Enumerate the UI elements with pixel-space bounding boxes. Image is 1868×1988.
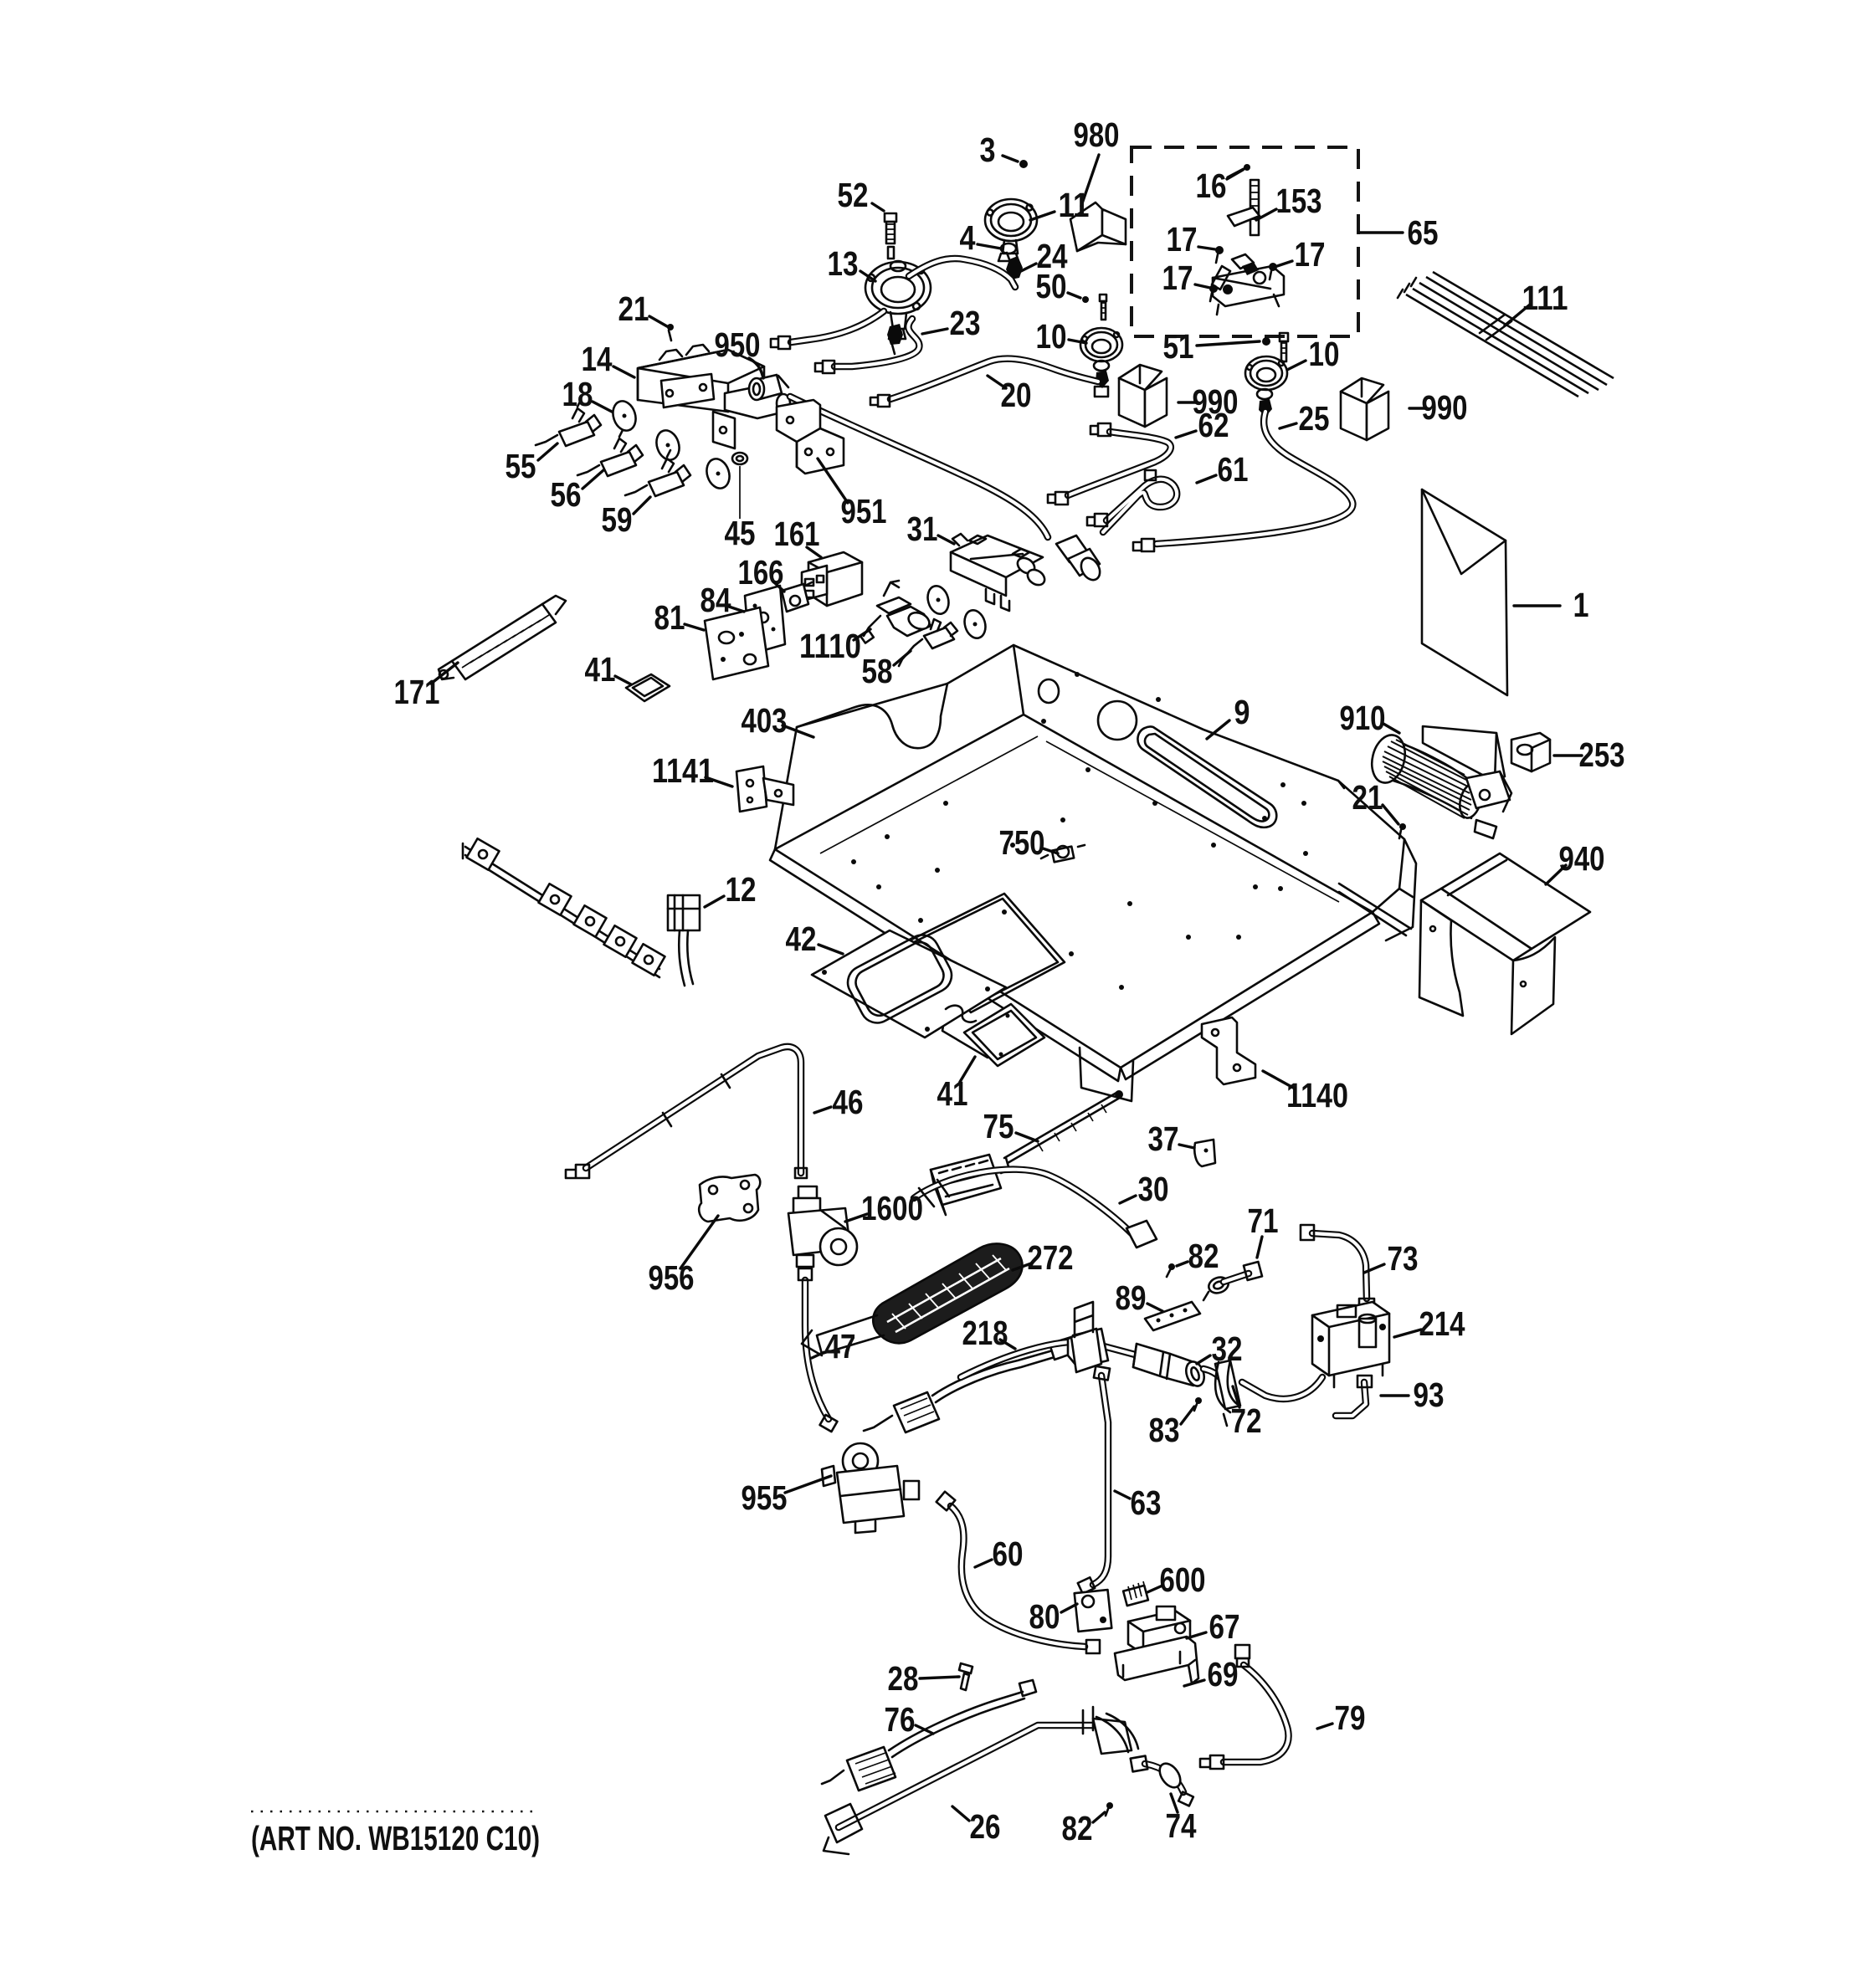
svg-text:218: 218	[962, 1314, 1008, 1352]
svg-text:3: 3	[980, 131, 996, 169]
svg-text:25: 25	[1299, 399, 1330, 438]
svg-text:65: 65	[1408, 213, 1439, 252]
svg-text:51: 51	[1163, 327, 1194, 366]
svg-text:1110: 1110	[799, 627, 861, 665]
svg-text:4: 4	[960, 218, 976, 257]
svg-text:16: 16	[1196, 167, 1227, 205]
svg-text:47: 47	[825, 1327, 856, 1365]
svg-text:75: 75	[983, 1107, 1014, 1145]
svg-text:45: 45	[725, 514, 756, 552]
svg-text:20: 20	[1001, 376, 1032, 414]
svg-text:750: 750	[999, 823, 1045, 862]
svg-text:951: 951	[841, 492, 887, 530]
svg-text:1: 1	[1573, 586, 1589, 624]
svg-text:161: 161	[774, 515, 820, 553]
svg-text:950: 950	[715, 325, 761, 364]
svg-text:62: 62	[1198, 406, 1229, 444]
svg-text:52: 52	[838, 176, 869, 214]
svg-text:72: 72	[1231, 1401, 1262, 1440]
svg-text:13: 13	[828, 244, 859, 283]
svg-text:55: 55	[505, 447, 536, 485]
svg-text:214: 214	[1419, 1304, 1465, 1343]
svg-text:600: 600	[1160, 1560, 1206, 1599]
svg-text:21: 21	[618, 289, 649, 328]
svg-text:9: 9	[1234, 693, 1250, 731]
svg-text:910: 910	[1340, 699, 1386, 737]
svg-text:955: 955	[742, 1478, 788, 1517]
svg-text:11: 11	[1059, 186, 1090, 224]
svg-text:12: 12	[726, 870, 757, 909]
svg-text:30: 30	[1138, 1170, 1169, 1208]
svg-text:253: 253	[1579, 735, 1625, 774]
svg-text:67: 67	[1209, 1607, 1240, 1646]
svg-text:60: 60	[993, 1535, 1024, 1573]
svg-text:956: 956	[649, 1258, 695, 1297]
svg-text:940: 940	[1559, 839, 1605, 878]
svg-text:63: 63	[1131, 1483, 1162, 1522]
svg-text:41: 41	[585, 650, 616, 689]
svg-text:31: 31	[907, 510, 938, 548]
svg-text:82: 82	[1062, 1809, 1093, 1847]
svg-text:80: 80	[1029, 1597, 1060, 1636]
svg-text:42: 42	[786, 920, 817, 958]
svg-text:71: 71	[1248, 1202, 1279, 1240]
svg-text:26: 26	[970, 1807, 1001, 1846]
svg-text:58: 58	[862, 652, 893, 690]
svg-text:1140: 1140	[1286, 1076, 1348, 1114]
svg-text:272: 272	[1028, 1238, 1074, 1277]
svg-text:61: 61	[1218, 450, 1249, 489]
svg-text:153: 153	[1276, 182, 1322, 220]
svg-text:56: 56	[551, 475, 582, 514]
svg-text:50: 50	[1036, 267, 1067, 305]
svg-text:73: 73	[1388, 1239, 1419, 1278]
svg-text:980: 980	[1074, 115, 1120, 154]
svg-text:89: 89	[1116, 1278, 1147, 1317]
svg-text:69: 69	[1208, 1655, 1239, 1693]
svg-text:171: 171	[394, 673, 440, 711]
svg-text:403: 403	[742, 701, 788, 740]
svg-text:28: 28	[888, 1659, 919, 1698]
svg-text:10: 10	[1036, 317, 1067, 356]
svg-text:84: 84	[700, 581, 731, 619]
svg-text:17: 17	[1167, 220, 1198, 259]
svg-text:111: 111	[1522, 279, 1568, 317]
svg-text:76: 76	[885, 1700, 916, 1739]
svg-text:14: 14	[582, 340, 613, 378]
svg-text:21: 21	[1352, 778, 1383, 817]
svg-text:74: 74	[1166, 1806, 1197, 1845]
svg-text:17: 17	[1162, 259, 1193, 297]
svg-text:37: 37	[1148, 1120, 1179, 1158]
svg-text:10: 10	[1309, 335, 1340, 373]
svg-text:79: 79	[1335, 1699, 1366, 1737]
svg-text:81: 81	[654, 598, 685, 637]
svg-text:82: 82	[1188, 1237, 1219, 1275]
svg-text:17: 17	[1295, 235, 1326, 274]
svg-text:18: 18	[562, 375, 593, 413]
svg-text:41: 41	[937, 1074, 968, 1113]
svg-text:990: 990	[1422, 388, 1468, 427]
svg-text:1600: 1600	[861, 1189, 923, 1227]
svg-text:46: 46	[833, 1083, 864, 1121]
svg-text:1141: 1141	[652, 751, 714, 790]
svg-text:23: 23	[950, 304, 981, 342]
svg-text:(ART NO. WB15120 C10): (ART NO. WB15120 C10)	[251, 1819, 540, 1857]
svg-text:32: 32	[1212, 1330, 1243, 1368]
svg-text:59: 59	[602, 500, 633, 539]
svg-text:93: 93	[1414, 1376, 1445, 1414]
svg-text:83: 83	[1149, 1411, 1180, 1449]
